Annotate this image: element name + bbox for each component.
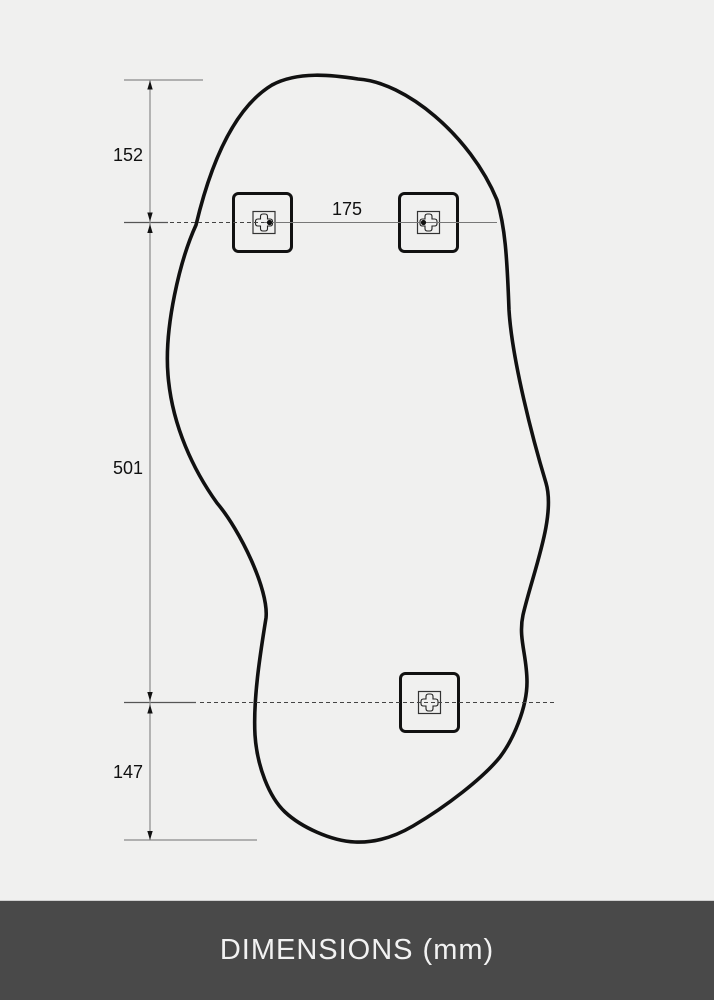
dimension-label-middle: 501 bbox=[113, 458, 143, 478]
dimension-label-bracket-spacing: 175 bbox=[332, 199, 362, 219]
arrowhead-up-icon bbox=[147, 81, 152, 90]
arrowhead-up-icon bbox=[147, 224, 152, 233]
mirror-outline bbox=[167, 75, 548, 842]
dimension-label-bottom: 147 bbox=[113, 762, 143, 782]
bracket-bottom bbox=[401, 674, 459, 732]
keyhole-screw-dot-left bbox=[267, 220, 272, 225]
dimension-label-top: 152 bbox=[113, 145, 143, 165]
arrowhead-down-icon bbox=[147, 831, 152, 840]
footer-title: DIMENSIONS (mm) bbox=[220, 934, 494, 967]
keyhole-screw-dot-right bbox=[421, 220, 426, 225]
arrowhead-down-icon bbox=[147, 213, 152, 222]
arrowhead-down-icon bbox=[147, 692, 152, 701]
footer-bar: DIMENSIONS (mm) bbox=[0, 900, 714, 1000]
arrowhead-up-icon bbox=[147, 705, 152, 714]
mirror-dimension-drawing: 152 501 147 175 bbox=[0, 0, 714, 900]
dimensions-diagram-page: 152 501 147 175 DIMENSIONS (mm) bbox=[0, 0, 714, 1000]
